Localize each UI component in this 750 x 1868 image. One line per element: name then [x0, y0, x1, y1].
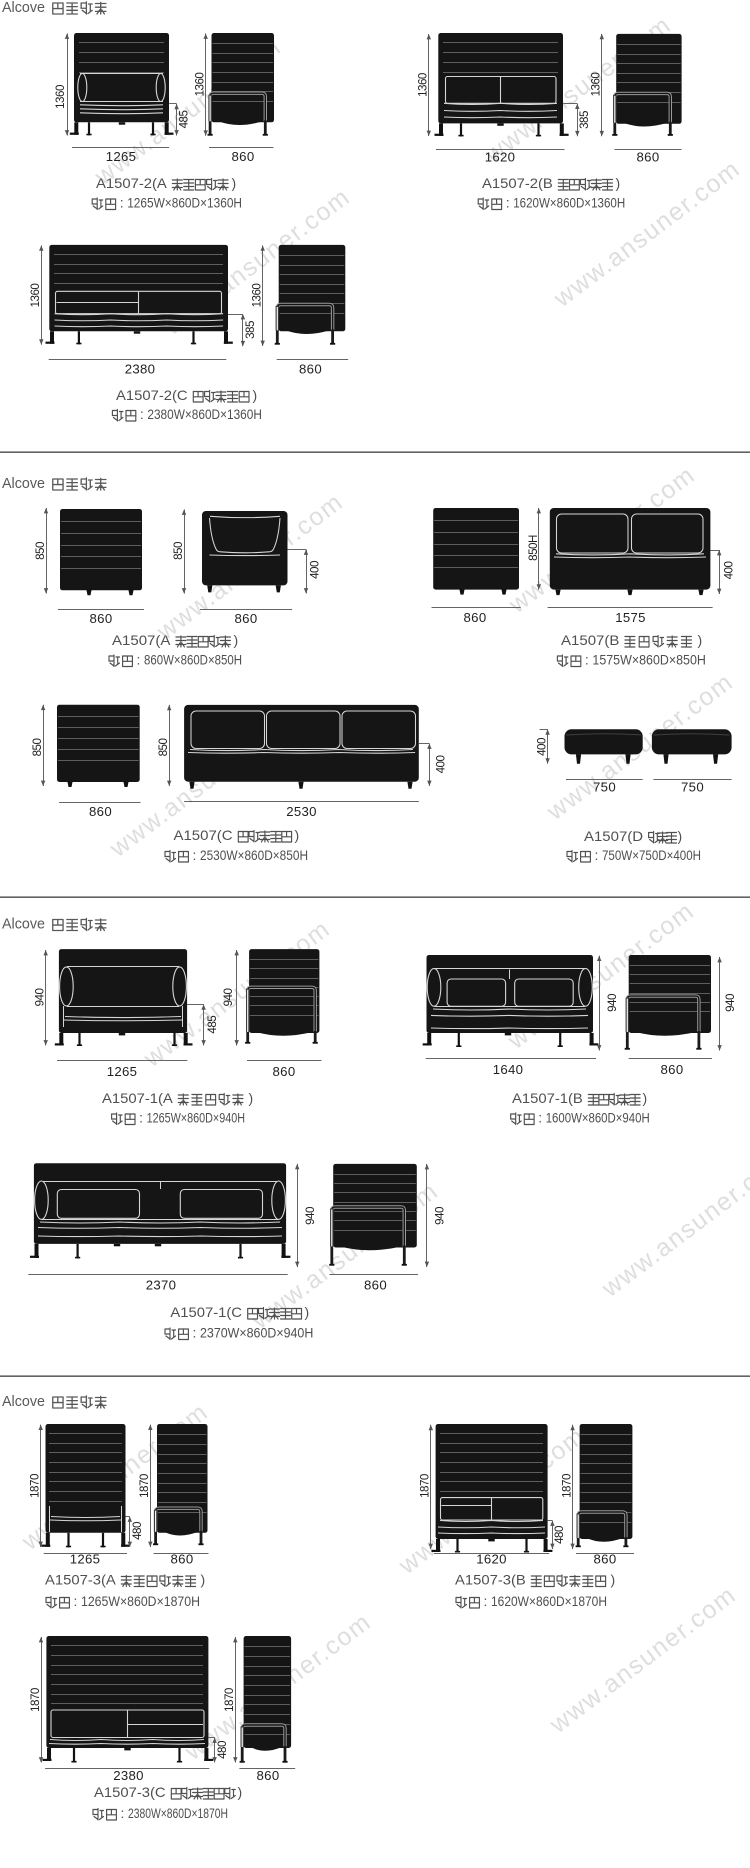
svg-text:860: 860 — [257, 1768, 280, 1783]
svg-text::: : — [484, 1593, 488, 1609]
svg-text:A1507-2(B: A1507-2(B — [482, 175, 553, 191]
svg-text:1265: 1265 — [106, 149, 137, 164]
svg-text:940: 940 — [304, 1207, 317, 1225]
svg-text:A1507(A: A1507(A — [112, 632, 171, 648]
svg-text:A1507-1(B: A1507-1(B — [512, 1090, 583, 1106]
svg-text::: : — [137, 652, 141, 668]
svg-text:2380W×860D×1870H: 2380W×860D×1870H — [128, 1805, 228, 1821]
svg-text::: : — [193, 847, 197, 863]
svg-text:400: 400 — [723, 562, 736, 580]
svg-text:750: 750 — [593, 780, 616, 795]
svg-text:860: 860 — [273, 1064, 296, 1079]
svg-text::: : — [595, 847, 599, 863]
svg-text::: : — [121, 1805, 125, 1821]
svg-text:1360: 1360 — [29, 284, 42, 308]
svg-text:400: 400 — [536, 738, 549, 756]
svg-text:): ) — [249, 1090, 254, 1106]
svg-text:1870: 1870 — [419, 1474, 432, 1498]
svg-text:1600W×860D×940H: 1600W×860D×940H — [546, 1110, 650, 1126]
svg-text:860: 860 — [299, 362, 322, 377]
svg-text:860: 860 — [464, 610, 487, 625]
svg-text:A1507-3(A: A1507-3(A — [45, 1572, 116, 1588]
svg-text:): ) — [234, 632, 239, 648]
svg-text:2530: 2530 — [286, 804, 317, 819]
svg-text:): ) — [232, 175, 237, 191]
svg-text:A1507-1(C: A1507-1(C — [170, 1304, 242, 1320]
svg-text:485: 485 — [206, 1016, 219, 1034]
svg-text:): ) — [305, 1304, 310, 1320]
svg-text:860: 860 — [171, 1552, 194, 1567]
svg-text:1640: 1640 — [493, 1062, 524, 1077]
svg-text:2370: 2370 — [146, 1278, 177, 1293]
svg-text:1265W×860D×940H: 1265W×860D×940H — [147, 1110, 245, 1126]
svg-text::: : — [585, 652, 589, 668]
svg-text:1870: 1870 — [223, 1688, 236, 1712]
svg-text:): ) — [295, 827, 300, 843]
svg-text:Alcove: Alcove — [2, 0, 45, 16]
svg-text:1575W×860D×850H: 1575W×860D×850H — [592, 652, 706, 668]
svg-text:A1507-2(A: A1507-2(A — [96, 175, 167, 191]
svg-text:485: 485 — [177, 111, 190, 129]
svg-text:1265W×860D×1870H: 1265W×860D×1870H — [81, 1593, 200, 1609]
svg-text:860: 860 — [232, 149, 255, 164]
svg-text:A1507-1(A: A1507-1(A — [102, 1090, 173, 1106]
svg-text:1265W×860D×1360H: 1265W×860D×1360H — [127, 195, 242, 211]
svg-text::: : — [74, 1593, 78, 1609]
svg-text:860: 860 — [661, 1062, 684, 1077]
svg-text:860: 860 — [637, 150, 660, 165]
svg-text::: : — [140, 406, 144, 422]
svg-text:750: 750 — [681, 780, 704, 795]
svg-text:Alcove: Alcove — [2, 1394, 45, 1410]
svg-text:480: 480 — [131, 1522, 144, 1540]
svg-text:1360: 1360 — [54, 85, 67, 109]
svg-text:850H: 850H — [527, 535, 540, 561]
svg-text:1620W×860D×1870H: 1620W×860D×1870H — [491, 1593, 607, 1609]
svg-text:): ) — [201, 1572, 206, 1588]
svg-text:): ) — [616, 175, 621, 191]
svg-text:1265: 1265 — [70, 1552, 101, 1567]
svg-text:1360: 1360 — [417, 73, 430, 97]
svg-text:A1507-3(C: A1507-3(C — [94, 1784, 166, 1800]
svg-text:400: 400 — [309, 561, 322, 579]
svg-text:850: 850 — [31, 739, 44, 757]
svg-text:940: 940 — [724, 994, 737, 1012]
svg-text:860W×860D×850H: 860W×860D×850H — [144, 652, 242, 668]
svg-text:480: 480 — [553, 1526, 566, 1544]
svg-text:1360: 1360 — [251, 284, 264, 308]
svg-text:): ) — [253, 387, 258, 403]
svg-text:1870: 1870 — [29, 1474, 42, 1498]
svg-text:): ) — [611, 1572, 616, 1588]
svg-text:): ) — [678, 828, 683, 844]
svg-text:850: 850 — [172, 542, 185, 560]
svg-text::: : — [120, 195, 124, 211]
svg-text:2380W×860D×1360H: 2380W×860D×1360H — [147, 406, 262, 422]
svg-text:2530W×860D×850H: 2530W×860D×850H — [200, 847, 308, 863]
svg-text:1620: 1620 — [485, 150, 516, 165]
svg-text:940: 940 — [222, 989, 235, 1007]
svg-text:940: 940 — [606, 994, 619, 1012]
svg-text:1360: 1360 — [590, 73, 603, 97]
svg-text:1870: 1870 — [29, 1688, 42, 1712]
svg-text:1620W×860D×1360H: 1620W×860D×1360H — [513, 195, 625, 211]
svg-text:1870: 1870 — [138, 1474, 151, 1498]
svg-text:): ) — [238, 1784, 243, 1800]
svg-text::: : — [139, 1110, 143, 1126]
svg-text:860: 860 — [364, 1278, 387, 1293]
svg-text:750W×750D×400H: 750W×750D×400H — [602, 847, 701, 863]
svg-text:): ) — [698, 632, 703, 648]
svg-text:2380: 2380 — [125, 362, 156, 377]
svg-text:1265: 1265 — [107, 1064, 138, 1079]
svg-text:860: 860 — [235, 611, 258, 626]
svg-text:Alcove: Alcove — [2, 917, 45, 933]
svg-text:1620: 1620 — [476, 1552, 507, 1567]
svg-text:2380: 2380 — [113, 1768, 144, 1783]
svg-text:400: 400 — [435, 756, 448, 774]
svg-text:Alcove: Alcove — [2, 476, 45, 492]
svg-text:2370W×860D×940H: 2370W×860D×940H — [200, 1325, 313, 1341]
svg-text:385: 385 — [578, 111, 591, 129]
svg-text:1870: 1870 — [560, 1474, 573, 1498]
svg-text:A1507-2(C: A1507-2(C — [116, 387, 188, 403]
svg-text:): ) — [643, 1090, 648, 1106]
svg-text::: : — [193, 1325, 197, 1341]
svg-text:940: 940 — [34, 989, 47, 1007]
svg-text::: : — [506, 195, 510, 211]
svg-text:A1507(C: A1507(C — [174, 827, 233, 843]
svg-text:480: 480 — [216, 1741, 229, 1759]
svg-text:850: 850 — [34, 542, 47, 560]
svg-text:850: 850 — [157, 739, 170, 757]
svg-text:385: 385 — [244, 321, 257, 339]
svg-text:940: 940 — [434, 1207, 447, 1225]
svg-text::: : — [538, 1110, 542, 1126]
svg-text:A1507(B: A1507(B — [561, 632, 619, 648]
svg-text:860: 860 — [90, 611, 113, 626]
svg-text:1575: 1575 — [615, 610, 646, 625]
svg-text:A1507(D: A1507(D — [584, 828, 643, 844]
svg-text:860: 860 — [89, 804, 112, 819]
svg-text:860: 860 — [594, 1552, 617, 1567]
svg-text:1360: 1360 — [194, 73, 207, 97]
svg-text:A1507-3(B: A1507-3(B — [455, 1572, 526, 1588]
